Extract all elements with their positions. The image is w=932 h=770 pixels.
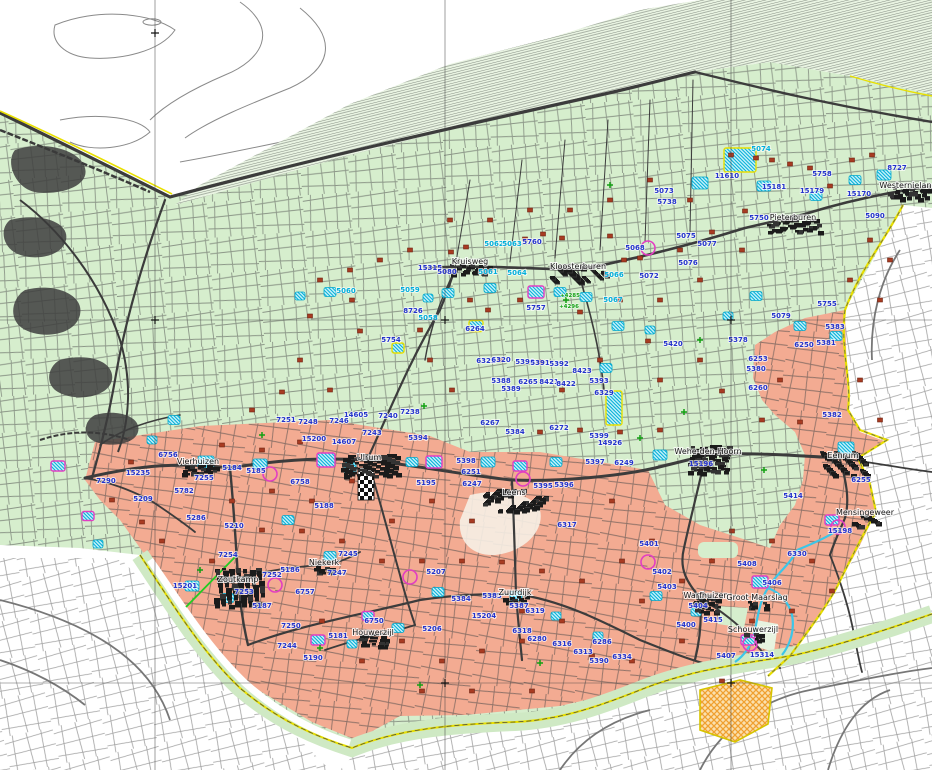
farm-marker [638, 256, 643, 260]
farm-marker [620, 559, 625, 563]
farm-marker [540, 569, 545, 573]
builtup-block [255, 597, 259, 600]
builtup-block [905, 193, 909, 196]
farm-marker [110, 498, 115, 502]
town-label: Niekerk [309, 558, 340, 567]
water-site-marker [849, 176, 861, 185]
parcel-number-label: 5415 [703, 616, 723, 624]
parcel-number-label: 6272 [549, 424, 569, 432]
builtup-block [718, 465, 724, 470]
parcel-number-label: 5408 [737, 560, 757, 568]
builtup-block [794, 223, 800, 228]
builtup-block [378, 645, 384, 650]
water-site-marker [513, 461, 527, 471]
farm-marker [730, 529, 735, 533]
builtup-block [506, 510, 510, 513]
parcel-number-label: 7243 [362, 429, 382, 437]
farm-marker [798, 420, 803, 424]
water-site-marker [481, 457, 495, 467]
farm-marker [470, 689, 475, 693]
water-site-marker [168, 416, 180, 425]
builtup-block [761, 636, 765, 639]
parcel-number-label: 5757 [526, 304, 546, 312]
builtup-block [890, 196, 894, 199]
builtup-block [483, 503, 488, 507]
builtup-block [920, 190, 924, 193]
builtup-block [235, 601, 241, 606]
parcel-number-label: 5383 [825, 323, 845, 331]
builtup-block [764, 607, 770, 612]
parcel-number-label: 6319 [525, 607, 545, 615]
builtup-block [362, 641, 367, 645]
parcel-number-label: 6334 [612, 653, 632, 661]
farm-marker [318, 278, 323, 282]
parcel-number-label: 5738 [657, 198, 677, 206]
builtup-block [864, 463, 868, 466]
parcel-number-label: 5402 [652, 568, 672, 576]
farm-marker [878, 418, 883, 422]
farm-marker [648, 178, 653, 182]
parcel-number-label: 6250 [794, 341, 814, 349]
farm-marker [464, 245, 469, 249]
town-label: Mensingeweer [836, 508, 895, 517]
town-label: Warfhuizen [684, 591, 729, 600]
map-canvas[interactable]: 1161015181575815179151708727575050905760… [0, 0, 932, 770]
parcel-number-label: 15170 [847, 190, 871, 198]
builtup-block [373, 640, 377, 643]
farm-marker [340, 539, 345, 543]
farm-marker [622, 258, 627, 262]
parcel-number-label: 5064 [507, 269, 527, 277]
builtup-block [788, 225, 792, 228]
parcel-number-label: 5076 [678, 259, 698, 267]
town-label: Zoutkamp [218, 575, 259, 584]
parcel-number-label: 7247 [327, 569, 347, 577]
farm-marker [428, 358, 433, 362]
farm-marker [640, 599, 645, 603]
parcel-number-label: 5403 [657, 583, 677, 591]
farm-marker [710, 230, 715, 234]
farm-marker [160, 539, 165, 543]
water-site-marker [600, 364, 612, 373]
parcel-number-label: 5404 [688, 602, 708, 610]
water-site-marker [392, 343, 404, 353]
builtup-block [384, 467, 390, 472]
parcel-number-label: 5384 [505, 428, 525, 436]
town-label: Schouwerzijl [728, 625, 778, 634]
parcel-number-label: 5384 [451, 595, 471, 603]
farm-marker [408, 248, 413, 252]
parcel-number-label: 6286 [592, 638, 612, 646]
farm-marker [810, 559, 815, 563]
builtup-block [345, 468, 349, 471]
builtup-block [855, 523, 859, 526]
builtup-block [725, 468, 730, 472]
parcel-number-label: 5062 [484, 240, 504, 248]
town-label: Leens [502, 488, 525, 497]
builtup-block [760, 639, 765, 643]
builtup-block [483, 495, 487, 498]
builtup-block [912, 192, 918, 197]
parcel-number-label: 5750 [749, 214, 769, 222]
builtup-block [361, 644, 366, 648]
builtup-block [845, 472, 849, 475]
builtup-block [182, 473, 188, 478]
builtup-block [188, 469, 192, 472]
parcel-number-label: 6251 [461, 468, 481, 476]
water-site-marker [347, 640, 357, 648]
parcel-number-label: 5389 [501, 385, 521, 393]
parcel-number-label: 5185 [246, 467, 266, 475]
builtup-block [350, 465, 354, 468]
builtup-block [767, 224, 771, 227]
parcel-number-label: 5188 [314, 502, 334, 510]
farm-marker [541, 232, 546, 236]
parcel-number-label: 5060 [336, 287, 356, 295]
builtup-block [753, 602, 758, 606]
parcel-number-label: 6316 [552, 640, 572, 648]
builtup-block [698, 469, 703, 473]
water-site-marker [51, 461, 65, 471]
water-site-marker [423, 294, 433, 302]
parcel-number-label: 7246 [329, 417, 349, 425]
farm-marker [848, 278, 853, 282]
water-site-marker [82, 512, 94, 521]
parcel-number-label: 5187 [252, 602, 272, 610]
parcel-number-label: 6317 [557, 521, 577, 529]
builtup-block [369, 640, 373, 643]
parcel-number-label: 7290 [96, 477, 116, 485]
water-site-marker [550, 458, 562, 467]
builtup-block [357, 474, 361, 477]
water-site-marker [750, 292, 762, 301]
parcel-number-label: 5190 [303, 654, 323, 662]
builtup-block [780, 227, 786, 232]
farm-marker [658, 378, 663, 382]
farm-marker [598, 358, 603, 362]
builtup-block [216, 570, 220, 573]
parcel-number-label: 6255 [851, 476, 871, 484]
water-site-marker [645, 326, 655, 334]
town-label: Groot Maarslag [726, 593, 787, 602]
town-label: Houwerzijl [352, 628, 394, 637]
builtup-block [257, 571, 262, 575]
parcel-number-label: 5075 [676, 232, 696, 240]
builtup-block [897, 195, 903, 200]
farm-marker [420, 559, 425, 563]
builtup-block [185, 466, 190, 470]
farm-marker [460, 559, 465, 563]
builtup-block [201, 468, 206, 472]
farm-marker [658, 428, 663, 432]
farm-marker [754, 156, 759, 160]
farm-marker [420, 689, 425, 693]
builtup-block [716, 459, 721, 463]
parcel-number-label: 5414 [783, 492, 803, 500]
farm-marker [449, 250, 454, 254]
builtup-block [833, 474, 839, 479]
farm-marker [470, 519, 475, 523]
parcel-number-label: 6750 [364, 617, 384, 625]
farm-marker [298, 358, 303, 362]
builtup-block [210, 467, 215, 471]
builtup-block [859, 525, 865, 530]
parcel-number-label: 7238 [400, 408, 420, 416]
parcel-number-label: 5400 [676, 621, 696, 629]
farm-marker [518, 298, 523, 302]
parcel-number-label: 5090 [865, 212, 885, 220]
builtup-block [704, 611, 710, 616]
parcel-number-label: 15179 [800, 187, 824, 195]
builtup-block [222, 568, 226, 571]
farm-marker [230, 499, 235, 503]
farm-marker [578, 428, 583, 432]
farm-marker [858, 378, 863, 382]
farm-marker [378, 258, 383, 262]
builtup-block [349, 470, 353, 473]
builtup-block [582, 276, 586, 279]
parcel-number-label: 5382 [822, 411, 842, 419]
water-site-marker [612, 322, 624, 331]
builtup-block [259, 581, 265, 586]
farm-marker [260, 448, 265, 452]
farm-marker [788, 162, 793, 166]
parcel-number-label: 5058 [418, 314, 438, 322]
parcel-number-label: 15181 [762, 183, 786, 191]
water-site-marker [650, 592, 662, 601]
builtup-block [215, 603, 220, 607]
builtup-block [220, 594, 226, 599]
builtup-block [752, 605, 758, 610]
parcel-number-label: 5398 [456, 457, 476, 465]
annotation-label: +4296 [559, 304, 579, 310]
parcel-number-label: 5072 [639, 272, 659, 280]
farm-marker [538, 430, 543, 434]
water-site-marker [692, 177, 708, 189]
farm-marker [698, 278, 703, 282]
farm-marker [280, 390, 285, 394]
builtup-block [722, 457, 728, 462]
builtup-block [458, 266, 462, 269]
farm-marker [488, 218, 493, 222]
builtup-block [359, 464, 363, 467]
parcel-number-label: 5073 [654, 187, 674, 195]
annotation-label: +4285 [560, 293, 580, 299]
farm-marker [688, 198, 693, 202]
farm-marker [608, 198, 613, 202]
builtup-block [374, 637, 378, 640]
parcel-number-label: 5758 [812, 170, 832, 178]
farm-marker [720, 679, 725, 683]
farm-marker [480, 649, 485, 653]
farm-marker [868, 238, 873, 242]
water-site-marker [653, 450, 667, 460]
builtup-block [809, 226, 813, 229]
farm-marker [608, 234, 613, 238]
farm-marker [530, 689, 535, 693]
builtup-block [222, 604, 226, 607]
farm-marker [578, 310, 583, 314]
builtup-block [888, 192, 894, 197]
parcel-number-label: 15196 [689, 460, 713, 468]
builtup-block [213, 470, 217, 473]
builtup-block [895, 191, 900, 195]
farm-marker [328, 388, 333, 392]
town-label: Kloosterburen [550, 262, 606, 271]
builtup-block [902, 190, 906, 193]
farm-marker [850, 158, 855, 162]
farm-marker [760, 418, 765, 422]
farm-marker [610, 499, 615, 503]
farm-marker [888, 258, 893, 262]
builtup-block [348, 475, 352, 478]
town-label: Eenrum [827, 451, 858, 460]
farm-marker [450, 388, 455, 392]
farm-marker [400, 639, 405, 643]
parcel-number-label: 6253 [748, 355, 768, 363]
builtup-block [347, 458, 351, 461]
parcel-number-label: 5186 [280, 566, 300, 574]
builtup-block [697, 472, 702, 476]
builtup-block [344, 473, 348, 476]
parcel-number-label: 5407 [716, 652, 736, 660]
builtup-block [772, 229, 777, 233]
farm-marker [520, 639, 525, 643]
builtup-block [382, 455, 388, 460]
builtup-block [495, 499, 501, 504]
farm-marker [129, 460, 134, 464]
water-site-marker [147, 436, 157, 444]
builtup-block [254, 592, 259, 596]
builtup-block [765, 604, 770, 608]
farm-marker [878, 298, 883, 302]
parcel-number-label: 6313 [573, 648, 593, 656]
parcel-number-label: 7250 [281, 622, 301, 630]
town-label: Westernieland [879, 181, 932, 190]
farm-marker [750, 619, 755, 623]
parcel-number-label: 5397 [585, 458, 605, 466]
builtup-block [351, 460, 355, 463]
builtup-block [243, 569, 247, 572]
farm-marker [500, 560, 505, 564]
farm-marker [740, 248, 745, 252]
water-site-marker [311, 635, 325, 645]
parcel-number-label: 5209 [133, 495, 153, 503]
parcel-number-label: 14926 [598, 439, 622, 447]
town-label: Pieterburen [770, 213, 816, 222]
builtup-block [817, 224, 822, 228]
farm-marker [390, 519, 395, 523]
farm-marker [770, 539, 775, 543]
parcel-number-label: 6756 [158, 451, 178, 459]
parcel-number-label: 5391 [530, 359, 550, 367]
builtup-block [925, 197, 930, 201]
farm-marker [528, 208, 533, 212]
builtup-block [253, 585, 259, 590]
builtup-block [250, 570, 256, 575]
parcel-number-label: 5755 [817, 300, 837, 308]
parcel-number-label: 5393 [589, 377, 609, 385]
builtup-block [803, 228, 808, 232]
parcel-number-label: 5210 [224, 522, 244, 530]
parcel-number-label: 7248 [298, 418, 318, 426]
parcel-number-label: 6247 [462, 480, 482, 488]
builtup-block [260, 586, 265, 590]
parcel-number-label: 6758 [290, 478, 310, 486]
water-site-marker [93, 540, 103, 548]
parcel-number-label: 6330 [787, 550, 807, 558]
parcel-number-label: 5077 [697, 240, 717, 248]
water-site-marker [426, 456, 442, 468]
farm-marker [486, 308, 491, 312]
builtup-block [228, 600, 232, 603]
builtup-block [219, 587, 223, 590]
parcel-number-label: 5390 [589, 657, 609, 665]
parcel-number-label: 5184 [222, 464, 242, 472]
parcel-number-label: 5206 [422, 625, 442, 633]
builtup-block [709, 602, 715, 607]
town-label: Kruisweg [452, 257, 489, 266]
parcel-number-label: 6757 [295, 588, 315, 596]
parcel-number-label: 5059 [400, 286, 420, 294]
farm-marker [770, 158, 775, 162]
parcel-number-label: 5782 [174, 487, 194, 495]
farm-marker [698, 358, 703, 362]
farm-marker [560, 388, 565, 392]
builtup-block [715, 462, 720, 466]
farm-marker [320, 619, 325, 623]
water-site-marker [794, 322, 806, 331]
map-viewport[interactable]: 1161015181575815179151708727575050905760… [0, 0, 932, 770]
farm-marker [348, 268, 353, 272]
water-site-marker [580, 293, 592, 302]
parcel-number-label: 15198 [828, 527, 852, 535]
parcel-number-label: 7240 [378, 412, 398, 420]
farm-marker [743, 209, 748, 213]
farm-marker [778, 378, 783, 382]
builtup-block [192, 469, 197, 473]
builtup-block [229, 605, 235, 610]
farm-marker [140, 520, 145, 524]
farm-marker [250, 408, 255, 412]
farm-marker [220, 443, 225, 447]
builtup-block [359, 638, 364, 642]
water-site-marker [484, 284, 496, 293]
builtup-block [498, 510, 503, 514]
farm-marker [678, 248, 683, 252]
builtup-block [358, 469, 362, 472]
parcel-number-label: 15204 [472, 612, 496, 620]
builtup-block [724, 471, 729, 475]
builtup-block [355, 462, 359, 465]
parcel-number-label: 5080 [437, 268, 457, 276]
farm-marker [350, 479, 355, 483]
parcel-number-label: 6264 [465, 325, 485, 333]
farm-marker [618, 430, 623, 434]
builtup-block [818, 231, 824, 236]
builtup-block [214, 598, 220, 603]
farm-marker [568, 208, 573, 212]
parcel-number-label: 8423 [572, 367, 592, 375]
parcel-number-label: 5401 [639, 540, 659, 548]
parcel-number-label: 8422 [556, 380, 576, 388]
builtup-block [363, 464, 368, 468]
parcel-number-label: 5066 [604, 271, 624, 279]
farm-marker [710, 559, 715, 563]
builtup-block [353, 472, 357, 475]
parcel-number-label: 7254 [218, 551, 238, 559]
parcel-number-label: 5754 [381, 336, 401, 344]
